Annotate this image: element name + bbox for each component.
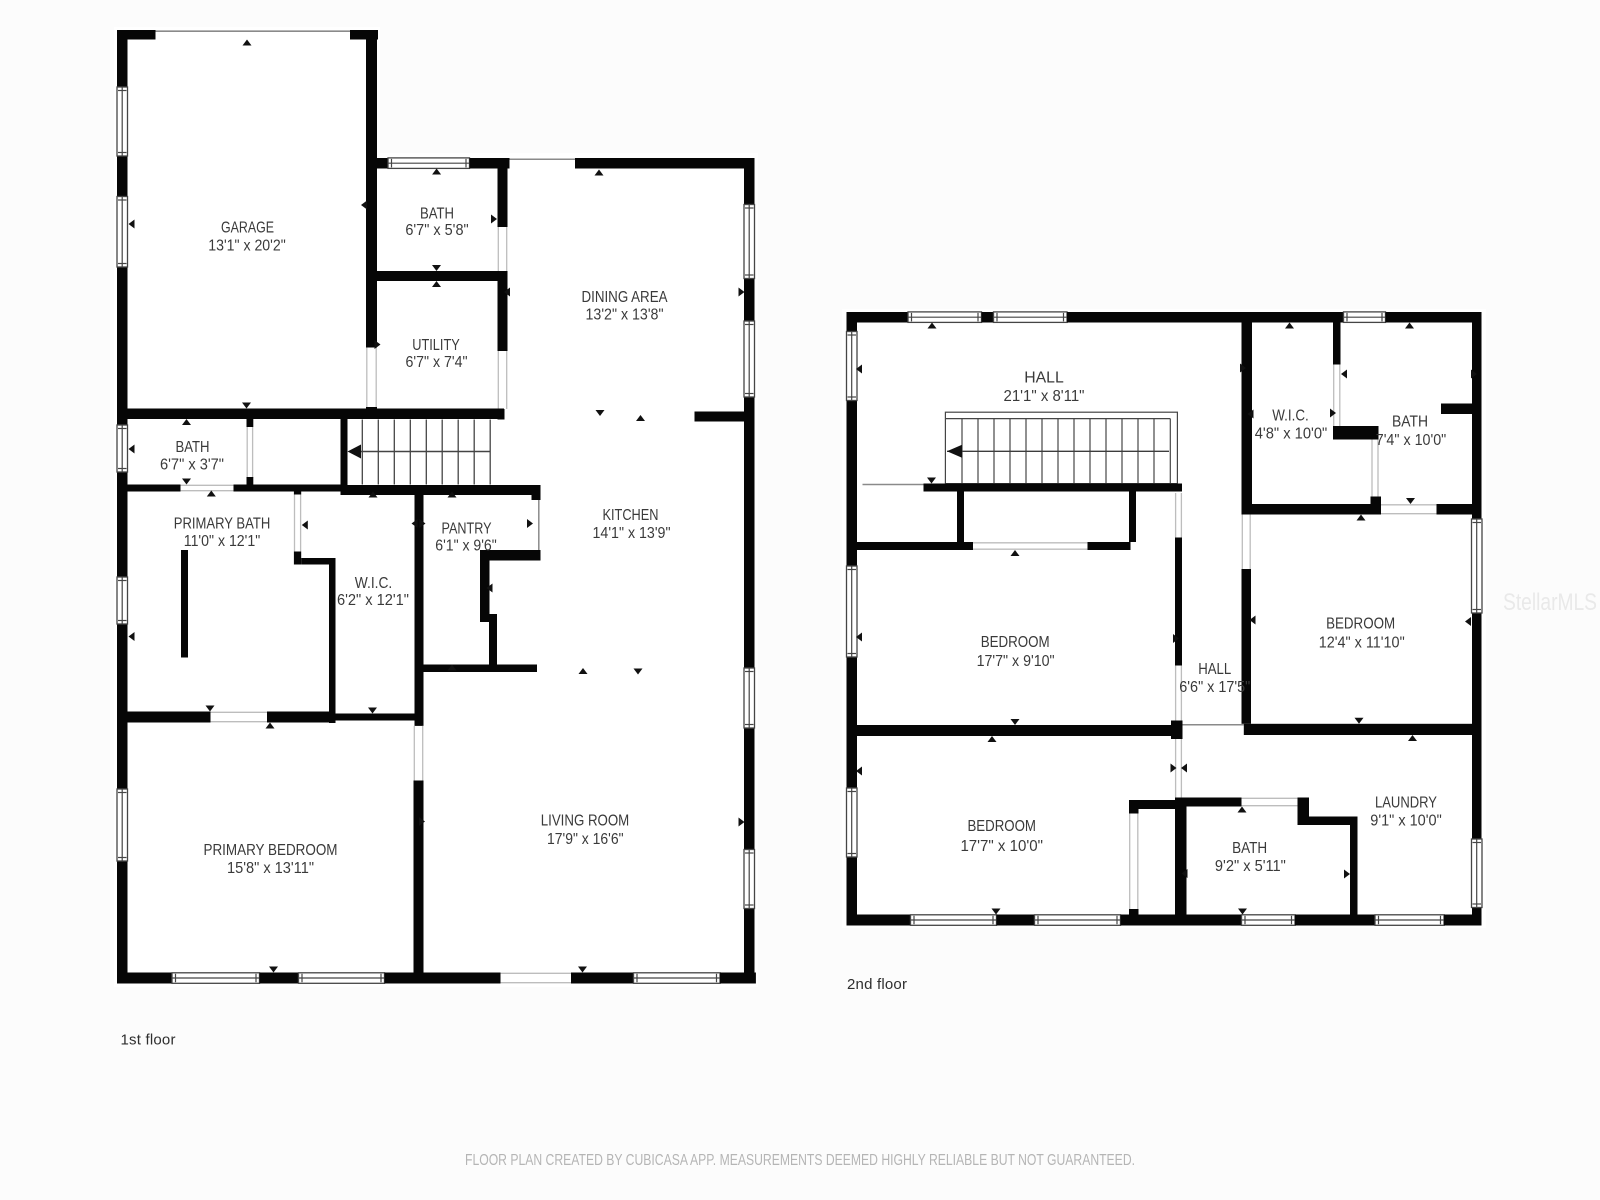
- svg-text:LIVING ROOM: LIVING ROOM: [541, 813, 630, 830]
- svg-text:6'7" x 5'8": 6'7" x 5'8": [405, 222, 468, 239]
- svg-text:GARAGE: GARAGE: [221, 220, 274, 237]
- svg-text:HALL: HALL: [1024, 370, 1064, 387]
- svg-text:17'9" x 16'6": 17'9" x 16'6": [547, 831, 624, 848]
- svg-text:6'1" x 9'6": 6'1" x 9'6": [435, 538, 497, 555]
- svg-text:BEDROOM: BEDROOM: [967, 818, 1036, 835]
- svg-text:KITCHEN: KITCHEN: [603, 507, 659, 524]
- svg-text:HALL: HALL: [1198, 661, 1231, 678]
- svg-text:PANTRY: PANTRY: [442, 521, 492, 538]
- svg-text:BEDROOM: BEDROOM: [981, 634, 1050, 651]
- svg-text:12'4" x 11'10": 12'4" x 11'10": [1319, 635, 1405, 652]
- svg-text:21'1" x 8'11": 21'1" x 8'11": [1004, 388, 1085, 405]
- svg-text:6'6" x 17'5": 6'6" x 17'5": [1179, 679, 1250, 696]
- svg-text:13'1" x 20'2": 13'1" x 20'2": [208, 238, 286, 255]
- svg-text:7'4" x 10'0": 7'4" x 10'0": [1376, 432, 1447, 449]
- svg-text:9'1" x 10'0": 9'1" x 10'0": [1370, 813, 1442, 830]
- svg-text:FLOOR PLAN CREATED BY CUBICASA: FLOOR PLAN CREATED BY CUBICASA APP. MEAS…: [465, 1152, 1135, 1169]
- svg-text:6'7" x 3'7": 6'7" x 3'7": [160, 457, 224, 474]
- svg-text:17'7" x 9'10": 17'7" x 9'10": [977, 653, 1055, 670]
- svg-text:6'2" x 12'1": 6'2" x 12'1": [337, 592, 409, 609]
- svg-text:6'7" x 7'4": 6'7" x 7'4": [406, 354, 468, 371]
- svg-text:BATH: BATH: [1392, 414, 1428, 431]
- svg-text:BEDROOM: BEDROOM: [1326, 616, 1395, 633]
- svg-text:LAUNDRY: LAUNDRY: [1375, 795, 1437, 812]
- svg-text:BATH: BATH: [1232, 840, 1267, 857]
- svg-text:9'2" x 5'11": 9'2" x 5'11": [1215, 858, 1286, 875]
- svg-text:PRIMARY BEDROOM: PRIMARY BEDROOM: [204, 842, 338, 859]
- svg-text:PRIMARY BATH: PRIMARY BATH: [174, 515, 271, 532]
- svg-text:2nd floor: 2nd floor: [847, 976, 907, 993]
- svg-text:BATH: BATH: [420, 206, 454, 223]
- svg-text:W.I.C.: W.I.C.: [355, 575, 393, 592]
- svg-text:UTILITY: UTILITY: [412, 337, 460, 354]
- svg-text:17'7" x 10'0": 17'7" x 10'0": [960, 838, 1043, 855]
- svg-text:BATH: BATH: [176, 439, 210, 456]
- svg-text:DINING AREA: DINING AREA: [582, 289, 669, 306]
- svg-text:4'8" x 10'0": 4'8" x 10'0": [1255, 426, 1328, 443]
- svg-text:StellarMLS: StellarMLS: [1503, 589, 1597, 616]
- svg-text:15'8" x 13'11": 15'8" x 13'11": [227, 860, 314, 877]
- svg-text:14'1" x 13'9": 14'1" x 13'9": [593, 525, 671, 542]
- svg-text:11'0" x 12'1": 11'0" x 12'1": [184, 533, 261, 550]
- svg-text:13'2" x 13'8": 13'2" x 13'8": [586, 307, 664, 324]
- svg-text:W.I.C.: W.I.C.: [1272, 407, 1309, 424]
- svg-text:1st floor: 1st floor: [121, 1032, 176, 1049]
